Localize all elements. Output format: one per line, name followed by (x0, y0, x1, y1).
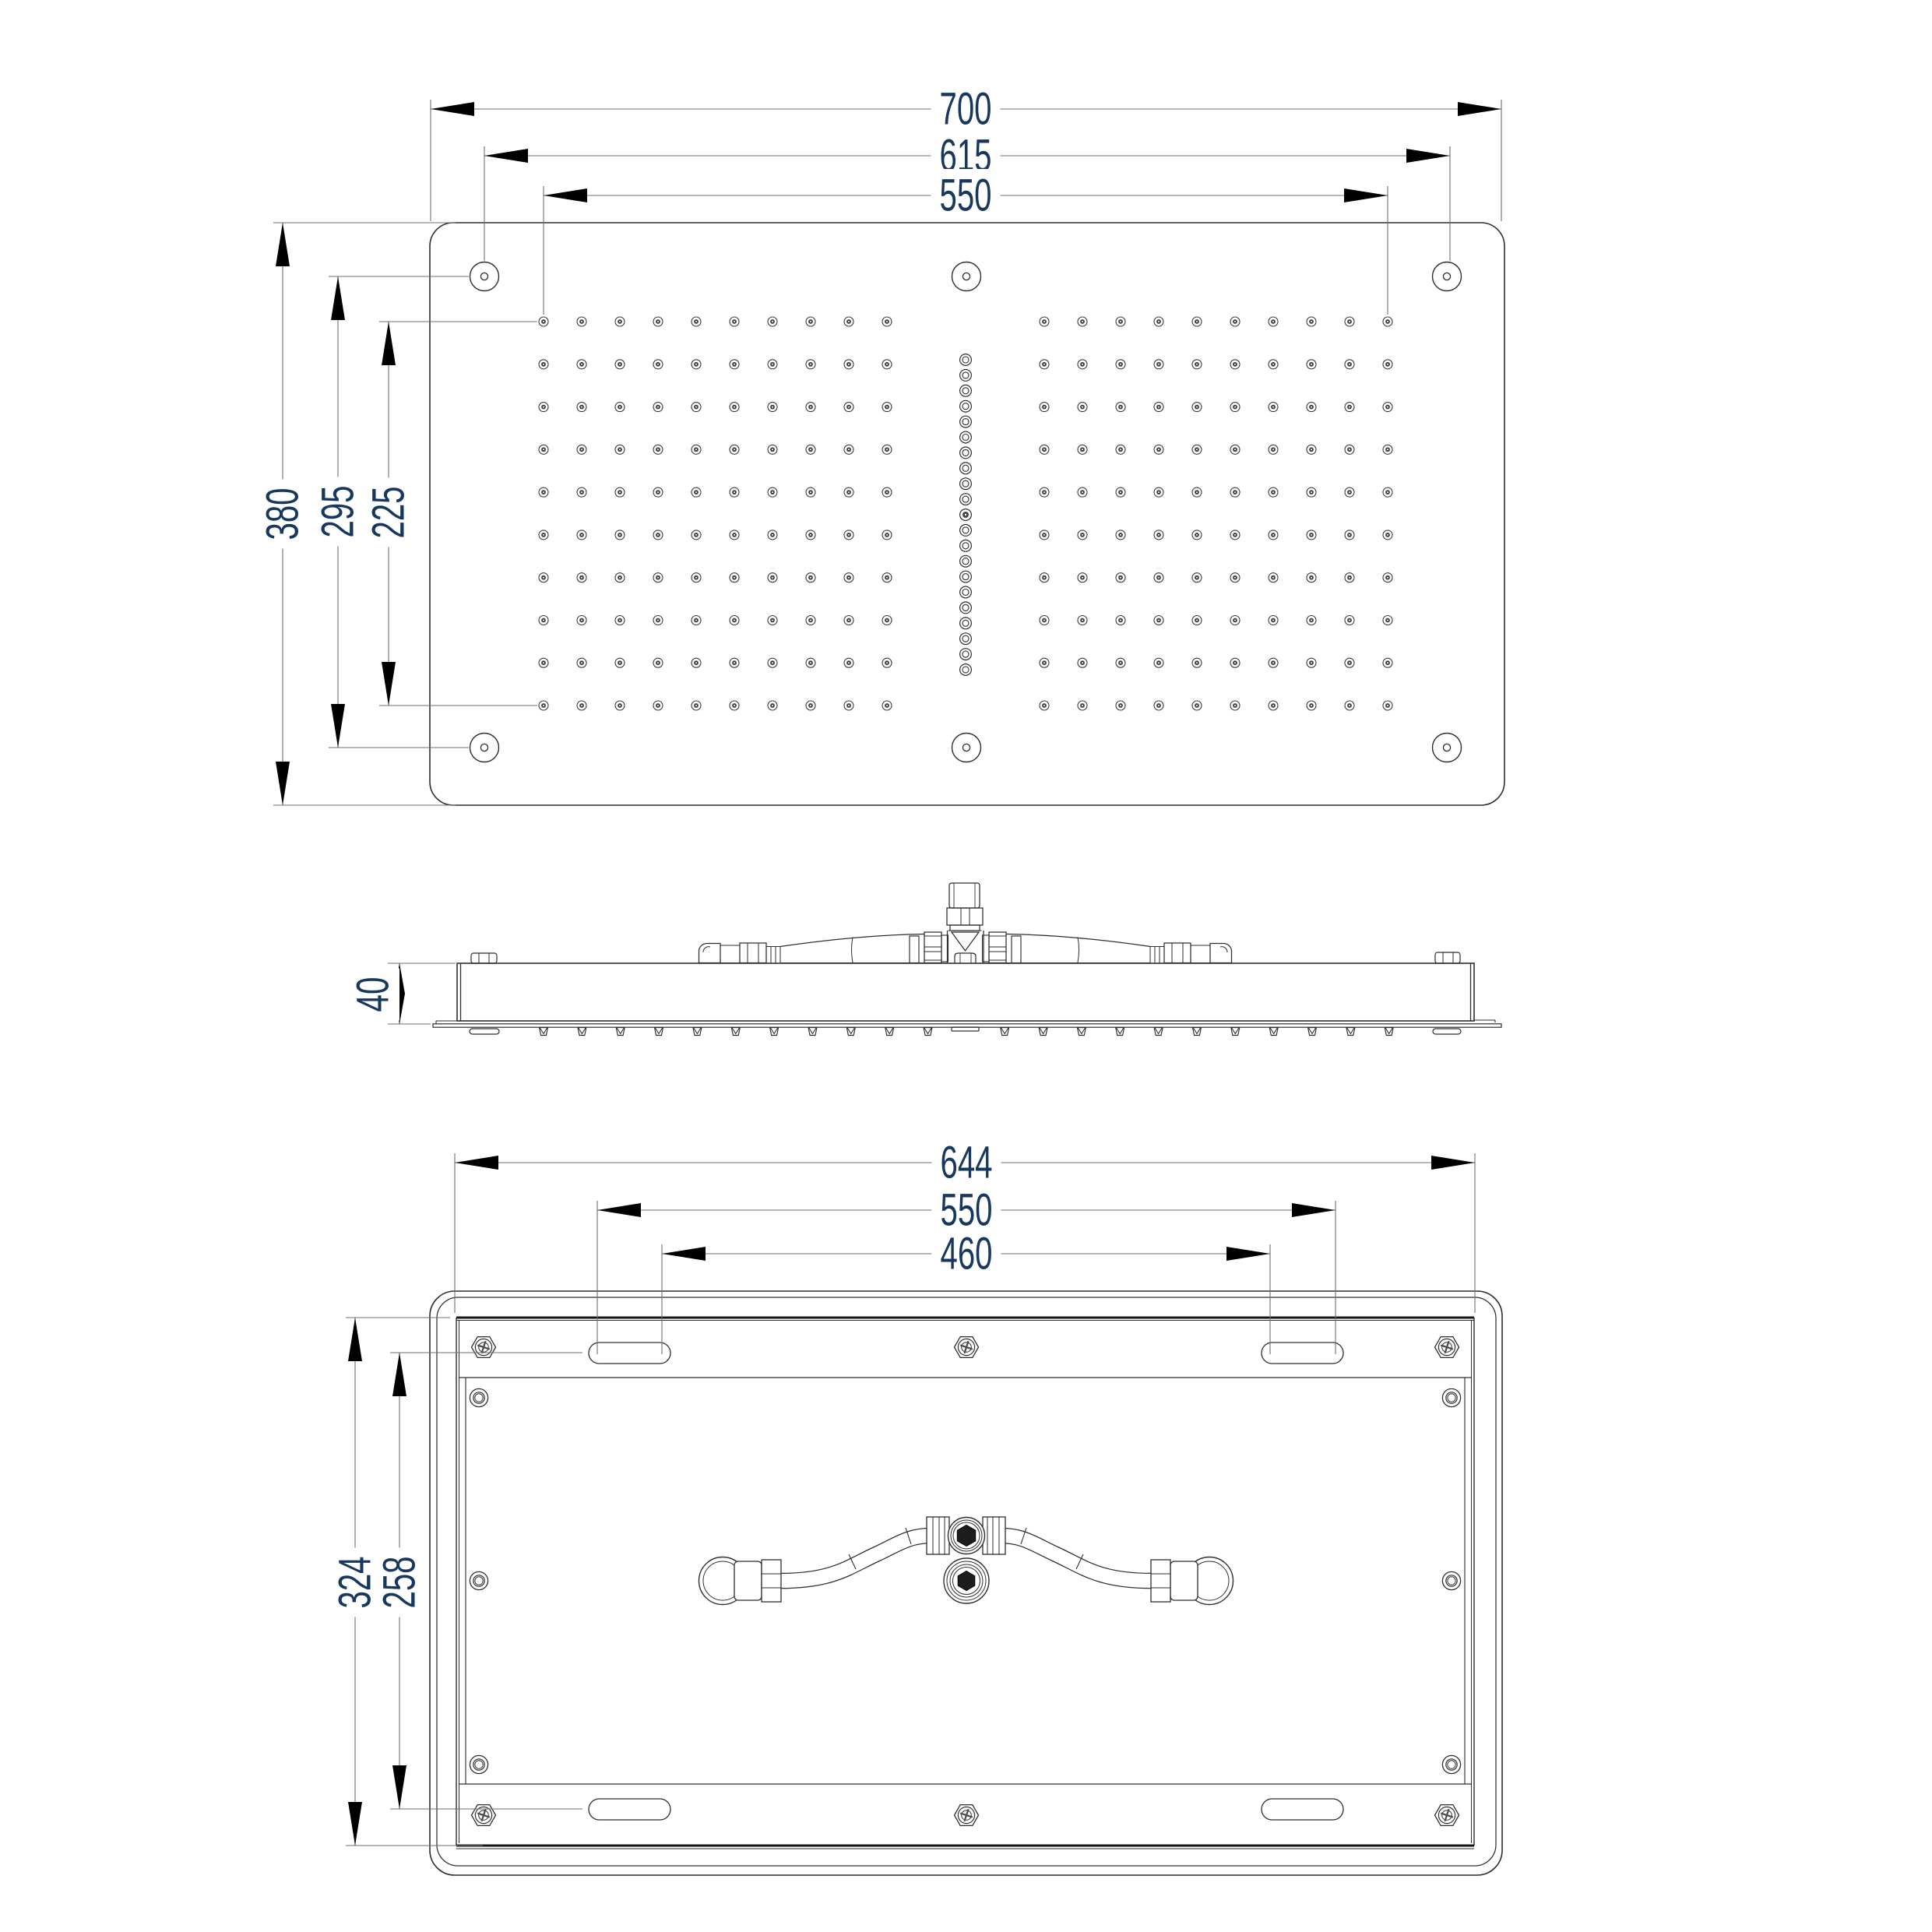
svg-text:225: 225 (364, 487, 414, 539)
svg-text:380: 380 (258, 488, 308, 540)
svg-text:700: 700 (940, 84, 992, 135)
svg-text:324: 324 (330, 1557, 381, 1609)
svg-text:550: 550 (940, 171, 992, 221)
svg-text:258: 258 (375, 1557, 425, 1609)
svg-text:644: 644 (941, 1138, 993, 1188)
svg-text:295: 295 (313, 486, 364, 538)
svg-text:40: 40 (348, 977, 399, 1012)
svg-text:460: 460 (941, 1229, 993, 1279)
